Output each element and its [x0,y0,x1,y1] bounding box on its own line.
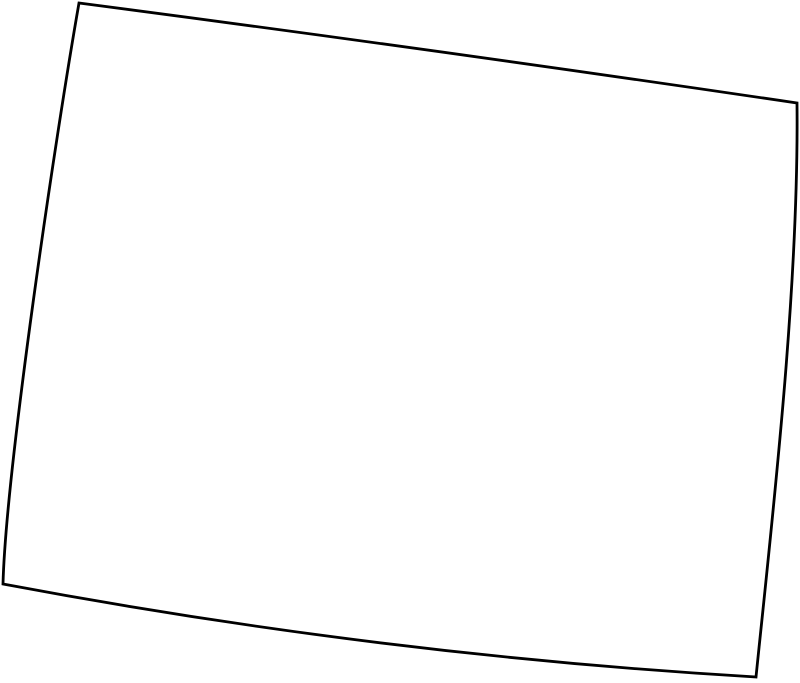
state-outline-path [3,3,797,677]
state-outline-map [0,0,800,683]
map-canvas [0,0,800,683]
